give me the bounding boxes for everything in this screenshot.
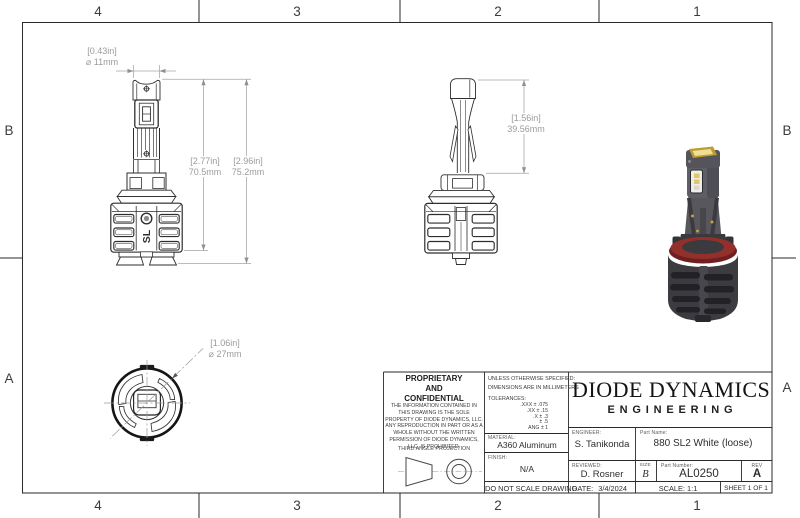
date-value: 3/4/2024 — [598, 484, 627, 493]
zone-label-top-1: 1 — [687, 4, 707, 19]
third-angle-projection-icon — [398, 458, 482, 487]
zone-label-top-3: 3 — [287, 4, 307, 19]
zone-label-bottom-1: 1 — [687, 498, 707, 513]
finish-label: FINISH: — [488, 455, 507, 461]
dim-front-height-inner: [2.77in]70.5mm — [184, 156, 226, 177]
zone-label-right-b: B — [777, 123, 797, 138]
size-label: SIZE — [640, 463, 651, 468]
engineering-drawing-sheet: SL — [0, 0, 800, 518]
proprietary-heading: PROPRIETARY AND CONFIDENTIAL — [386, 374, 482, 404]
zone-label-bottom-2: 2 — [488, 498, 508, 513]
reviewed-value: D. Rosner — [569, 469, 635, 480]
company-logo-division: ENGINEERING — [572, 404, 768, 416]
part-name-label: Part Name: — [640, 430, 667, 436]
spec-line-1: UNLESS OTHERWISE SPECIFIED: — [488, 376, 575, 382]
third-angle-projection-label: THIRD ANGLE PROJECTION — [386, 446, 482, 452]
sheet-value: SHEET 1 OF 1 — [722, 485, 770, 492]
bulb-3d-render — [668, 147, 738, 323]
dim-side-height: [1.56in]39.56mm — [503, 113, 549, 134]
spec-line-2: DIMENSIONS ARE IN MILLIMETERS — [488, 385, 579, 391]
dim-front-width: [0.43in]⌀ 11mm — [79, 46, 125, 67]
engineer-label: ENGINEER: — [572, 430, 601, 436]
zone-label-bottom-3: 3 — [287, 498, 307, 513]
zone-label-bottom-4: 4 — [88, 498, 108, 513]
part-number-value: AL0250 — [658, 468, 740, 480]
engineer-value: S. Tanikonda — [569, 439, 635, 450]
proprietary-body: THE INFORMATION CONTAINED IN THIS DRAWIN… — [385, 403, 483, 450]
bottom-view — [104, 347, 205, 447]
dim-bottom-diameter: [1.06in]⌀ 27mm — [203, 338, 247, 359]
do-not-scale-note: DO NOT SCALE DRAWING — [485, 484, 567, 493]
zone-label-top-2: 2 — [488, 4, 508, 19]
sl-logo-text: SL — [141, 229, 153, 243]
reviewed-label: REVIEWED: — [572, 463, 602, 469]
zone-label-left-a: A — [0, 371, 19, 386]
material-value: A360 Aluminum — [488, 440, 566, 450]
part-name-value: 880 SL2 White (loose) — [637, 438, 769, 449]
tolerances-list: .XXX ± .075 .XX ± .15 .X ± .3 ± .5 ANG ±… — [492, 403, 548, 432]
date-label: DATE: — [572, 484, 593, 493]
zone-label-left-b: B — [0, 123, 19, 138]
date-row: DATE: 3/4/2024 — [572, 484, 627, 493]
rev-value: A — [744, 468, 770, 480]
size-value: B — [637, 469, 654, 480]
zone-label-right-a: A — [777, 380, 797, 395]
company-logo-name: DIODE DYNAMICS — [572, 377, 768, 403]
side-view — [425, 79, 497, 265]
zone-label-top-4: 4 — [88, 4, 108, 19]
dim-front-height-outer: [2.96in]75.2mm — [227, 156, 269, 177]
finish-value: N/A — [488, 464, 566, 474]
scale-value: SCALE: 1:1 — [637, 484, 719, 493]
